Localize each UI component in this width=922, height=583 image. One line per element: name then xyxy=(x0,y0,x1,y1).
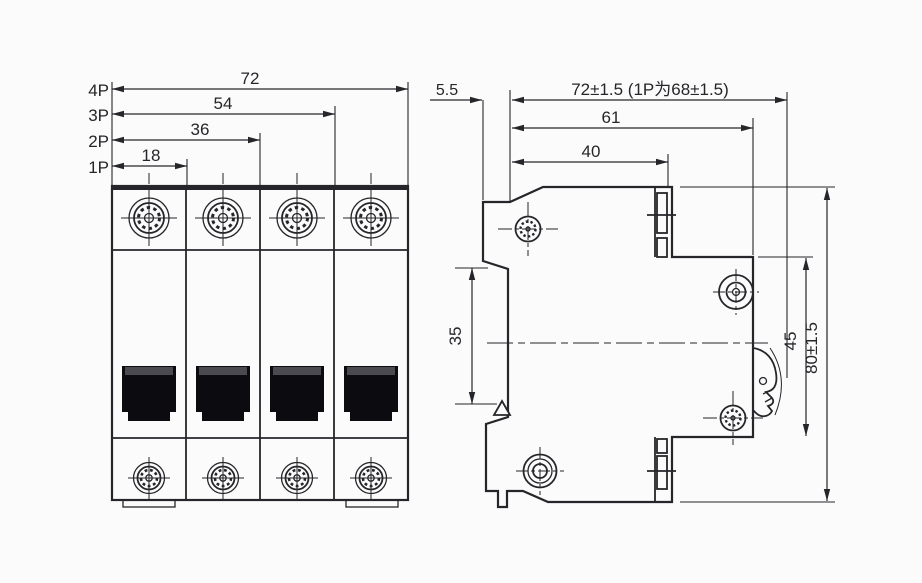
side-body-outline xyxy=(483,187,753,507)
toggle-handle xyxy=(122,366,176,421)
screw-icon xyxy=(498,202,558,256)
side-view: 5.5 72±1.5 (1P为68±1.5) 61 40 35 45 80±1.… xyxy=(430,80,835,507)
dim-body-depth-61: 61 xyxy=(512,108,753,128)
dim-4p-72: 4P 72 xyxy=(88,69,408,100)
terminal-screw-icon xyxy=(121,190,177,246)
front-view: 4P 72 3P 54 2P 36 1P 18 xyxy=(88,69,409,507)
dim-overall-height-80: 80±1.5 xyxy=(802,188,827,501)
drawing-canvas: 4P 72 3P 54 2P 36 1P 18 xyxy=(0,0,922,583)
handle-hole xyxy=(760,378,767,385)
dim-3p-54: 3P 54 xyxy=(88,94,335,125)
dim-hook-depth-value: 5.5 xyxy=(436,82,458,99)
circuit-breaker-dimension-drawing: 4P 72 3P 54 2P 36 1P 18 xyxy=(0,0,922,583)
side-toggle-handle xyxy=(753,348,781,416)
terminal-screw-icon xyxy=(269,190,325,246)
dim-1p-value: 18 xyxy=(142,146,161,165)
dim-2p-36: 2P 36 xyxy=(88,120,260,151)
dim-2p-pole-label: 2P xyxy=(88,132,109,151)
toggle-handle xyxy=(196,366,250,421)
dim-overall-depth-value: 72±1.5 (1P为68±1.5) xyxy=(571,80,729,99)
front-body-outline xyxy=(111,185,409,507)
terminal-screw-icon xyxy=(343,190,399,246)
dim-upper-depth-40: 40 xyxy=(512,142,668,162)
dim-3p-pole-label: 3P xyxy=(88,106,109,125)
dim-rail-section-35: 35 xyxy=(446,268,472,404)
dim-front-section-value: 45 xyxy=(781,332,800,351)
dim-4p-value: 72 xyxy=(241,69,260,88)
dim-4p-pole-label: 4P xyxy=(88,81,109,100)
dim-2p-value: 36 xyxy=(191,120,210,139)
dim-hook-5p5: 5.5 xyxy=(430,82,482,100)
dim-rail-section-value: 35 xyxy=(446,327,465,346)
terminal-screw-icon xyxy=(276,457,318,499)
top-edge-band xyxy=(111,185,409,190)
terminal-screw-icon xyxy=(202,457,244,499)
toggle-handle xyxy=(344,366,398,421)
terminal-screw-icon xyxy=(350,457,392,499)
terminal-screw-icon xyxy=(195,190,251,246)
toggle-handle xyxy=(270,366,324,421)
dim-1p-pole-label: 1P xyxy=(88,158,109,177)
terminal-screw-icon xyxy=(128,457,170,499)
dim-body-depth-value: 61 xyxy=(602,108,621,127)
dim-upper-depth-value: 40 xyxy=(582,142,601,161)
screw-icon xyxy=(516,447,564,495)
dim-overall-height-value: 80±1.5 xyxy=(802,322,821,374)
dim-overall-depth-72: 72±1.5 (1P为68±1.5) xyxy=(512,80,787,100)
dim-3p-value: 54 xyxy=(214,94,233,113)
